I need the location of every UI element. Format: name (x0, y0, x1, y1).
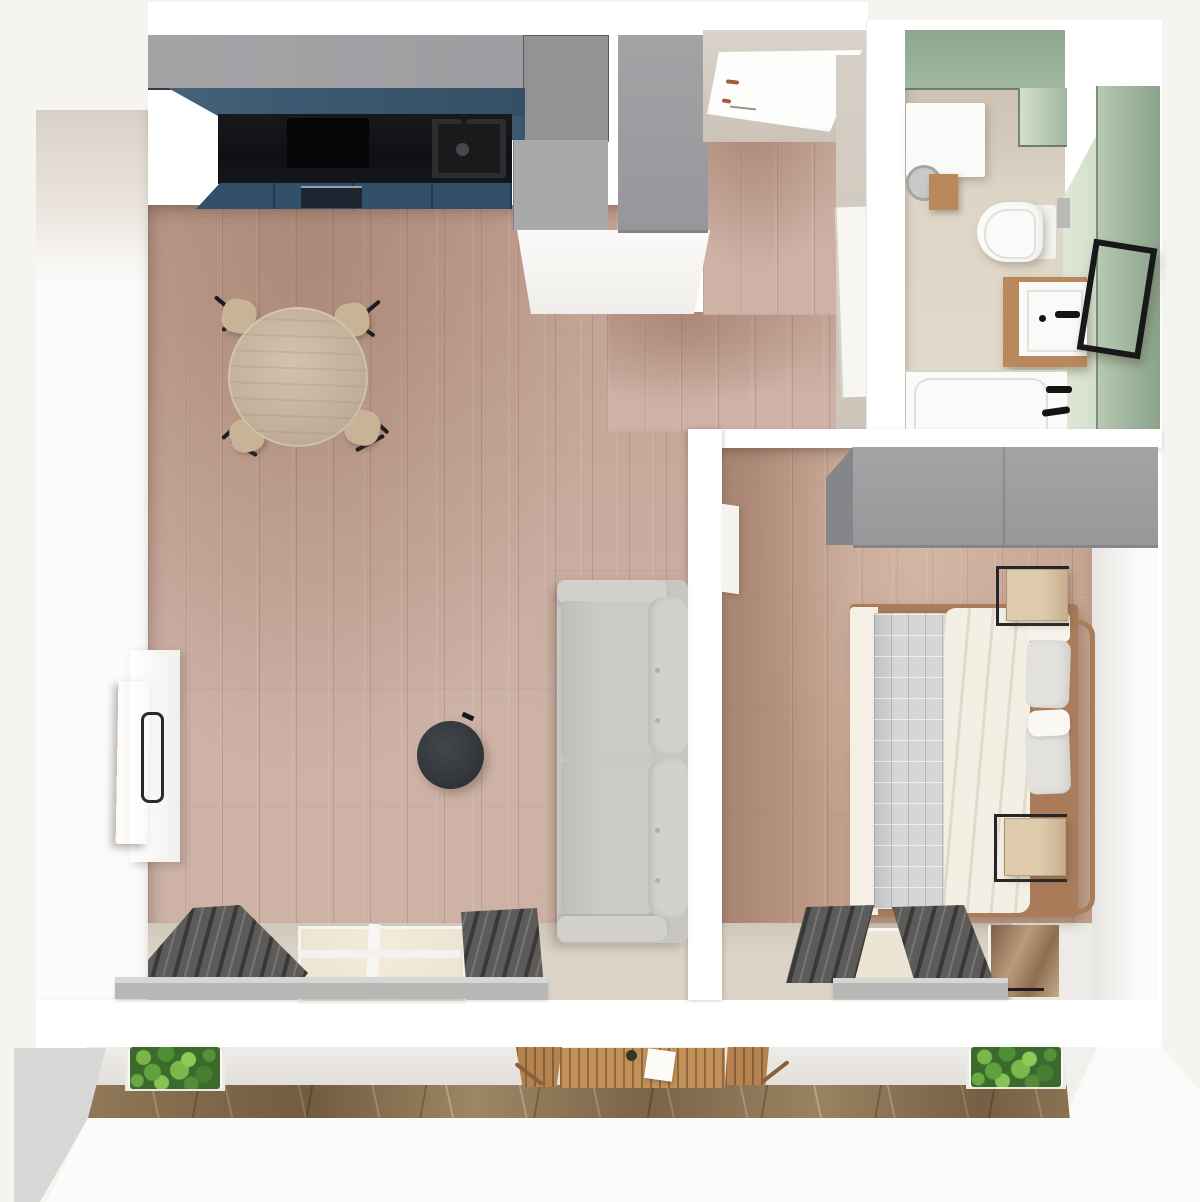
bedroom-wardrobe (853, 447, 1158, 548)
bed-pillow-1 (1025, 639, 1071, 708)
cooktop (287, 118, 369, 168)
nightstand-bottom (1004, 818, 1066, 876)
kitchen-sink-basin (438, 124, 500, 173)
kitchen-blue-corner (510, 116, 525, 140)
kitchen-faucet-knob (456, 143, 469, 156)
flush-plate (1057, 198, 1070, 228)
coffee-table (417, 721, 484, 789)
vanity-drain (1039, 315, 1046, 322)
sofa-button-2 (655, 718, 660, 723)
living-window-sill (115, 977, 548, 999)
sofa-button-3 (655, 828, 660, 833)
cabinet-front-face (513, 228, 713, 316)
vanity-faucet (1055, 311, 1080, 318)
balcony-table-tray (644, 1048, 676, 1082)
sofa-seat-1 (561, 601, 650, 759)
bedroom-top-wall (688, 429, 1162, 448)
bathroom-green-wall-top (905, 30, 1065, 90)
balcony-tiles (86, 1085, 1105, 1118)
nightstand-top (1006, 569, 1068, 621)
bathtub-inner (914, 378, 1048, 434)
oven (301, 186, 362, 208)
open-area-floor (607, 312, 866, 432)
hall-bath-wall (866, 20, 907, 432)
living-window-mullion-h (298, 950, 460, 958)
apartment-floor-plan (0, 0, 1200, 1202)
sofa-back-cushion-1 (648, 597, 688, 755)
sofa-back-cushion-2 (648, 758, 688, 918)
hall-wardrobe (618, 35, 708, 233)
bed-pillow-roll (1027, 709, 1070, 737)
kitchen-tall-cabinet (523, 35, 609, 142)
sofa-button-1 (655, 668, 660, 673)
balcony-table (560, 1048, 725, 1088)
tv-console-handle (141, 712, 164, 803)
sofa-seat-2 (561, 761, 650, 914)
bathtub-faucet (1046, 386, 1072, 393)
balcony-bottle (626, 1050, 637, 1061)
left-wall-face (36, 110, 148, 1000)
bathroom-green-wall-step (1018, 88, 1067, 147)
kitchen-end-cabinet (513, 140, 608, 230)
bath-wood-shelf (929, 174, 958, 210)
vanity-basin-inner (1027, 290, 1083, 352)
kitchen-backsplash-blue (168, 88, 525, 116)
bedroom-window-sill (833, 978, 1008, 998)
bed-quilt (874, 613, 946, 909)
planter-left-foliage (130, 1047, 220, 1089)
dining-table (228, 307, 368, 447)
planter-right-foliage (971, 1047, 1061, 1087)
sofa-button-4 (655, 878, 660, 883)
toilet-seat-line (984, 209, 1036, 259)
bedroom-door-panel (722, 504, 739, 594)
sofa-armrest-bottom (557, 916, 667, 941)
living-bedroom-wall (688, 429, 722, 1000)
